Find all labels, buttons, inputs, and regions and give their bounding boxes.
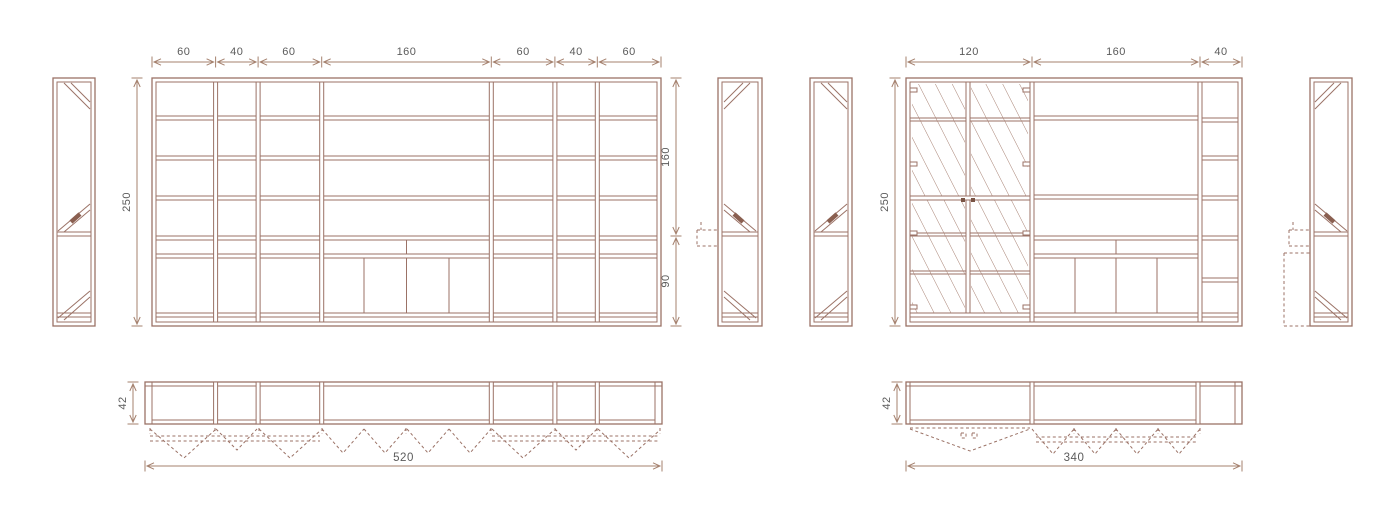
dim-label-left-seg1: 60 bbox=[177, 46, 190, 58]
dim-label-lower-section: 90 bbox=[660, 274, 672, 287]
pullout-bracket-dashed bbox=[697, 222, 718, 246]
wall-unit-technical-drawing: 60 40 60 160 60 40 60 250 160 90 bbox=[0, 0, 1392, 508]
dim-label-left-seg2: 40 bbox=[230, 46, 243, 58]
left-unit-height-dimension: 250 bbox=[121, 78, 143, 326]
left-unit-front-view bbox=[152, 78, 661, 326]
left-unit-plan-dimensions: 42 520 bbox=[117, 382, 662, 472]
right-unit-side-view-left bbox=[810, 78, 852, 326]
dim-label-left-height: 250 bbox=[121, 192, 133, 212]
dim-label-right-height: 250 bbox=[879, 192, 891, 212]
left-unit-side-view-right bbox=[697, 78, 762, 326]
left-unit-section-dimensions: 160 90 bbox=[660, 78, 682, 326]
left-unit-width-dimensions: 60 40 60 160 60 40 60 bbox=[152, 46, 661, 68]
right-unit-width-dimensions: 120 160 40 bbox=[906, 46, 1242, 68]
right-unit-front-view bbox=[906, 78, 1242, 326]
dim-label-upper-section: 160 bbox=[660, 147, 672, 167]
technical-drawing-page: 60 40 60 160 60 40 60 250 160 90 bbox=[0, 0, 1392, 508]
dim-label-right-seg1: 120 bbox=[959, 46, 979, 58]
door-swing-dashed bbox=[910, 428, 1200, 454]
dim-label-left-total-width: 520 bbox=[393, 452, 414, 464]
dim-label-left-seg7: 60 bbox=[622, 46, 635, 58]
right-unit-plan-dimensions: 42 340 bbox=[881, 382, 1242, 472]
right-unit-side-view-right bbox=[1284, 78, 1352, 326]
dim-label-left-seg5: 60 bbox=[516, 46, 529, 58]
pullout-bracket-dashed bbox=[1289, 222, 1310, 246]
dim-label-left-seg6: 40 bbox=[569, 46, 582, 58]
dim-label-left-seg4: 160 bbox=[397, 46, 417, 58]
open-door-projection-dashed bbox=[1284, 253, 1310, 326]
dim-label-right-seg2: 160 bbox=[1106, 46, 1126, 58]
left-unit-side-view-left bbox=[53, 78, 95, 326]
dim-label-right-seg3: 40 bbox=[1214, 46, 1227, 58]
right-unit-height-dimension: 250 bbox=[879, 78, 901, 326]
left-unit-plan-view bbox=[145, 382, 662, 458]
right-unit-plan-view bbox=[906, 382, 1242, 454]
dim-label-right-total-width: 340 bbox=[1064, 452, 1085, 464]
dim-label-right-depth: 42 bbox=[881, 396, 893, 409]
dim-label-left-seg3: 60 bbox=[282, 46, 295, 58]
dim-label-left-depth: 42 bbox=[117, 396, 129, 409]
